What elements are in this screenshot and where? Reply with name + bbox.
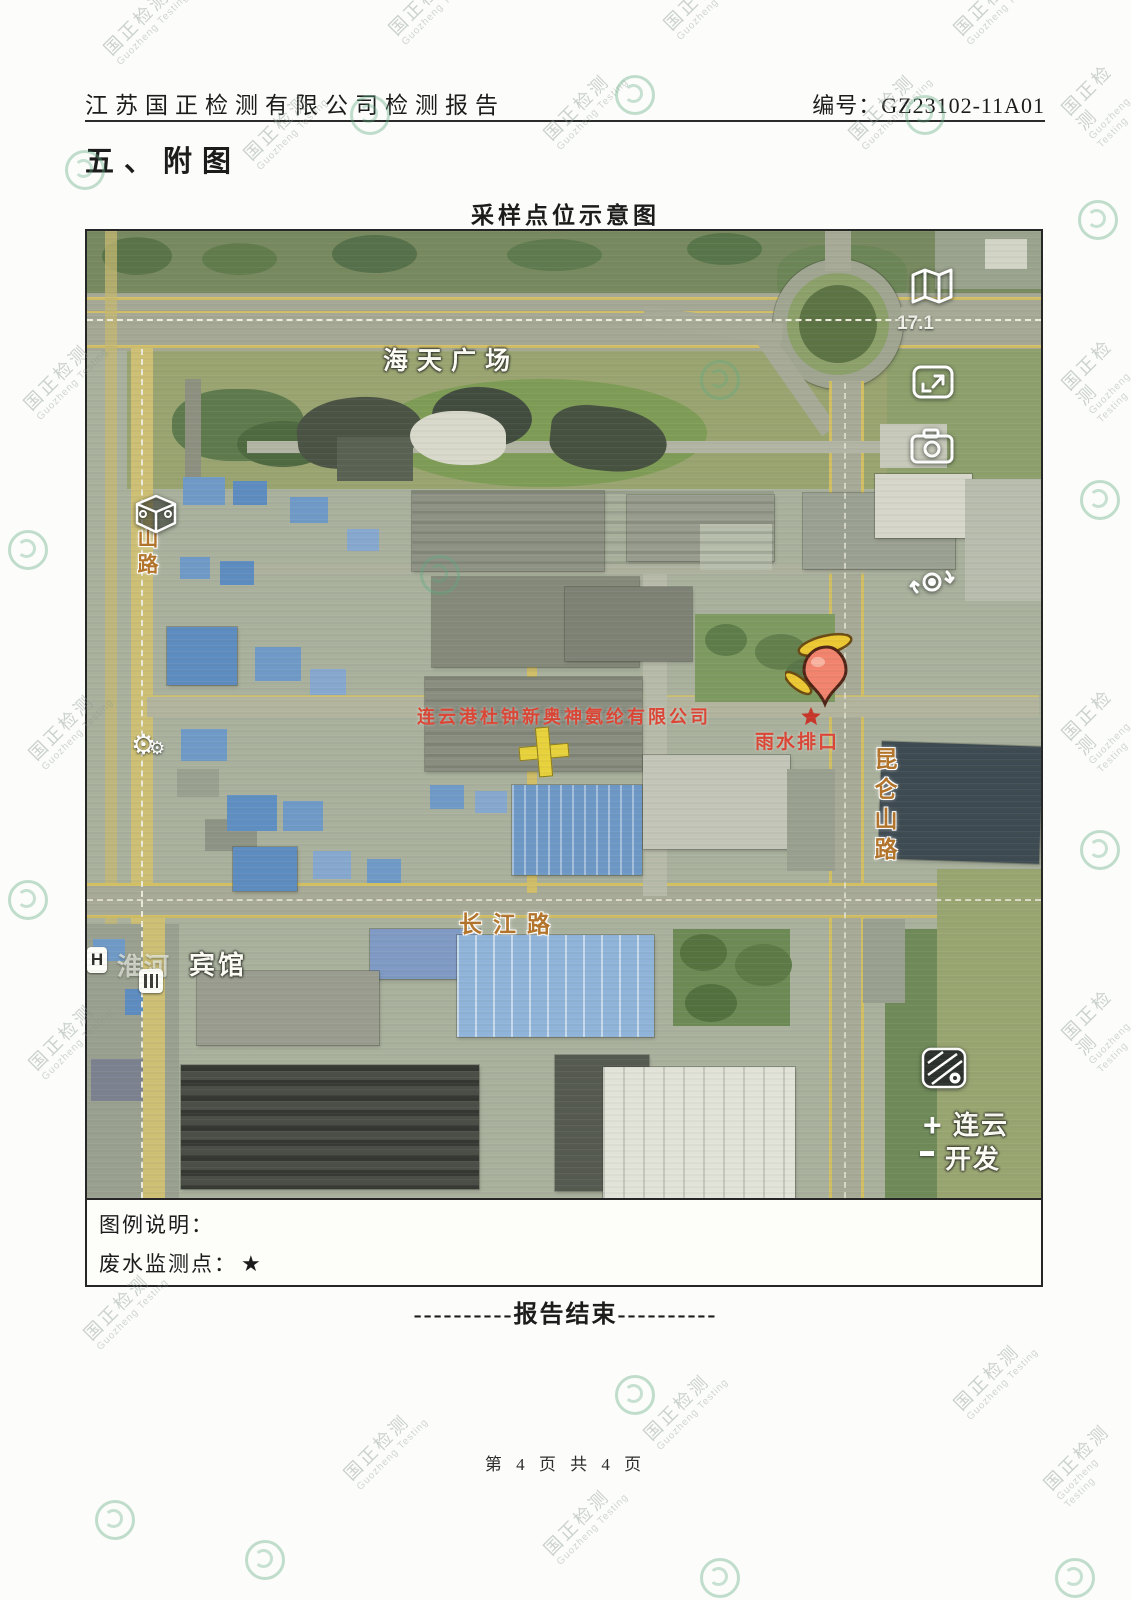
map-shape [185, 379, 201, 481]
legend-star-symbol: ★ [241, 1251, 263, 1276]
zoom-out-control [920, 1151, 934, 1156]
map-shape [290, 497, 328, 523]
map-shape [181, 729, 227, 761]
map-shape [799, 285, 877, 363]
map-shape [233, 847, 297, 891]
map-shape [87, 883, 1041, 886]
legend-item: 废水监测点：★ [99, 1248, 1041, 1278]
map-shape [965, 479, 1041, 601]
map-label-district-1: 连云 [953, 1105, 1009, 1142]
watermark-logo-icon [1080, 830, 1120, 870]
map-shape [220, 561, 254, 585]
map-label-outlet: 雨水排口 [755, 727, 839, 754]
map-shape [875, 474, 972, 538]
map-shape [705, 624, 747, 656]
report-title: 江苏国正检测有限公司检测报告 [85, 86, 505, 120]
map-zoom-level: 17.1 [897, 313, 934, 335]
watermark: 国正检测Guozheng Testing [385, 0, 476, 48]
map-shape [197, 971, 379, 1045]
factory-gears-icon: ⚙⚙ [131, 731, 165, 759]
fullscreen-icon [911, 363, 955, 401]
watermark: 国正检测Guozheng Testing [1058, 328, 1131, 425]
hotel-h-icon: H [87, 947, 107, 973]
watermark-logo-icon [95, 1500, 135, 1540]
map-shape [183, 477, 225, 505]
camera-icon [909, 427, 955, 465]
watermark: 国正检测Guozheng Testing [540, 1477, 631, 1568]
watermark-logo-icon [615, 75, 655, 115]
watermark-logo-icon [615, 1375, 655, 1415]
watermark: 国正检测Guozheng Testing [100, 0, 191, 68]
watermark-logo-icon [1080, 480, 1120, 520]
map-shape [735, 944, 792, 986]
map-shape [412, 491, 604, 571]
watermark-logo-icon [8, 530, 48, 570]
legend-item-label: 废水监测点： [99, 1252, 237, 1276]
map-shape [332, 235, 417, 273]
map-label-hotel: 宾馆 [189, 945, 247, 982]
map-label-district-2: 开发 [945, 1139, 1001, 1176]
map-shape [565, 587, 692, 661]
map-shape [603, 1067, 795, 1198]
satellite-layer-icon [921, 1047, 967, 1089]
map-shape [878, 741, 1041, 864]
map-shape [177, 769, 219, 797]
map-shape [643, 755, 790, 849]
page-number: 第 4 页 共 4 页 [0, 1450, 1131, 1475]
map-shape [685, 984, 737, 1022]
map-shape [700, 524, 772, 570]
map-label-right-road: 昆仑山路 [867, 747, 901, 867]
map-shape [283, 801, 323, 831]
report-page: 江苏国正检测有限公司检测报告 编号：GZ23102-11A01 五、附图 采样点… [0, 0, 1131, 1600]
figure-box: 海天广场 山路 昆仑山路 长江路 淮河 宾馆 连云港杜钟新奥神氨纶有限公司 雨水… [85, 229, 1043, 1287]
watermark: 国正检测Guozheng Testing [1058, 53, 1131, 150]
section-title: 五、附图 [85, 138, 241, 180]
map-shape [430, 785, 464, 809]
legend-heading: 图例说明： [99, 1209, 1041, 1239]
building-poi-icon [139, 969, 163, 993]
watermark: 国正检测Guozheng Testing [950, 0, 1041, 48]
map-label-company: 连云港杜钟新奥神氨纶有限公司 [417, 703, 711, 729]
figure-title: 采样点位示意图 [0, 196, 1131, 230]
map-shape [87, 885, 1041, 917]
map-label-plaza: 海天广场 [383, 341, 519, 377]
map-shape [181, 1065, 479, 1189]
satellite-map: 海天广场 山路 昆仑山路 长江路 淮河 宾馆 连云港杜钟新奥神氨纶有限公司 雨水… [87, 231, 1041, 1198]
location-pin-icon [785, 631, 869, 731]
zoom-in-control: + [923, 1107, 942, 1144]
watermark: 国正检测Guozheng Testing [340, 1402, 431, 1493]
map-shape [367, 859, 401, 883]
map-shape [337, 437, 413, 481]
map-shape [310, 669, 346, 695]
map-shape [787, 769, 835, 871]
watermark: 国正检测Guozheng Testing [1058, 978, 1131, 1075]
map-shape [202, 243, 277, 275]
folded-map-icon [909, 267, 955, 305]
watermark-logo-icon [700, 1558, 740, 1598]
map-shape [347, 529, 379, 551]
watermark: 国正检测Guozheng Testing [950, 1332, 1041, 1423]
map-shape [227, 795, 277, 831]
map-shape [985, 239, 1027, 269]
map-shape [87, 915, 1041, 918]
watermark-logo-icon [245, 1540, 285, 1580]
sampling-point-marker [785, 631, 869, 731]
report-end-marker: ----------报告结束---------- [0, 1294, 1131, 1329]
map-shape [680, 934, 727, 971]
watermark: 国正检测Guozheng Testing [640, 1362, 731, 1453]
map-shape [687, 233, 762, 265]
cube-poi-icon [131, 493, 181, 535]
map-shape [863, 919, 905, 1003]
watermark: 国正检测Guozheng Testing [540, 62, 631, 153]
report-number: 编号：GZ23102-11A01 [812, 88, 1045, 120]
watermark: 国正检测Guozheng Testing [660, 0, 751, 43]
header-rule [85, 120, 1045, 122]
map-shape [255, 647, 301, 681]
map-shape [825, 231, 851, 271]
watermark-logo-icon [8, 880, 48, 920]
map-shape [512, 785, 642, 875]
map-shape [233, 481, 267, 505]
map-shape [457, 935, 654, 1037]
map-shape [180, 557, 210, 579]
map-shape [475, 791, 507, 813]
watermark-logo-icon [1055, 1558, 1095, 1598]
map-shape [313, 851, 351, 879]
legend: 图例说明： 废水监测点：★ [87, 1198, 1041, 1285]
map-label-bottom-road: 长江路 [459, 905, 561, 939]
watermark: 国正检测Guozheng Testing [1058, 678, 1131, 775]
map-shape [167, 627, 237, 685]
street-view-camera-icon [909, 563, 955, 603]
map-shape [507, 239, 602, 271]
